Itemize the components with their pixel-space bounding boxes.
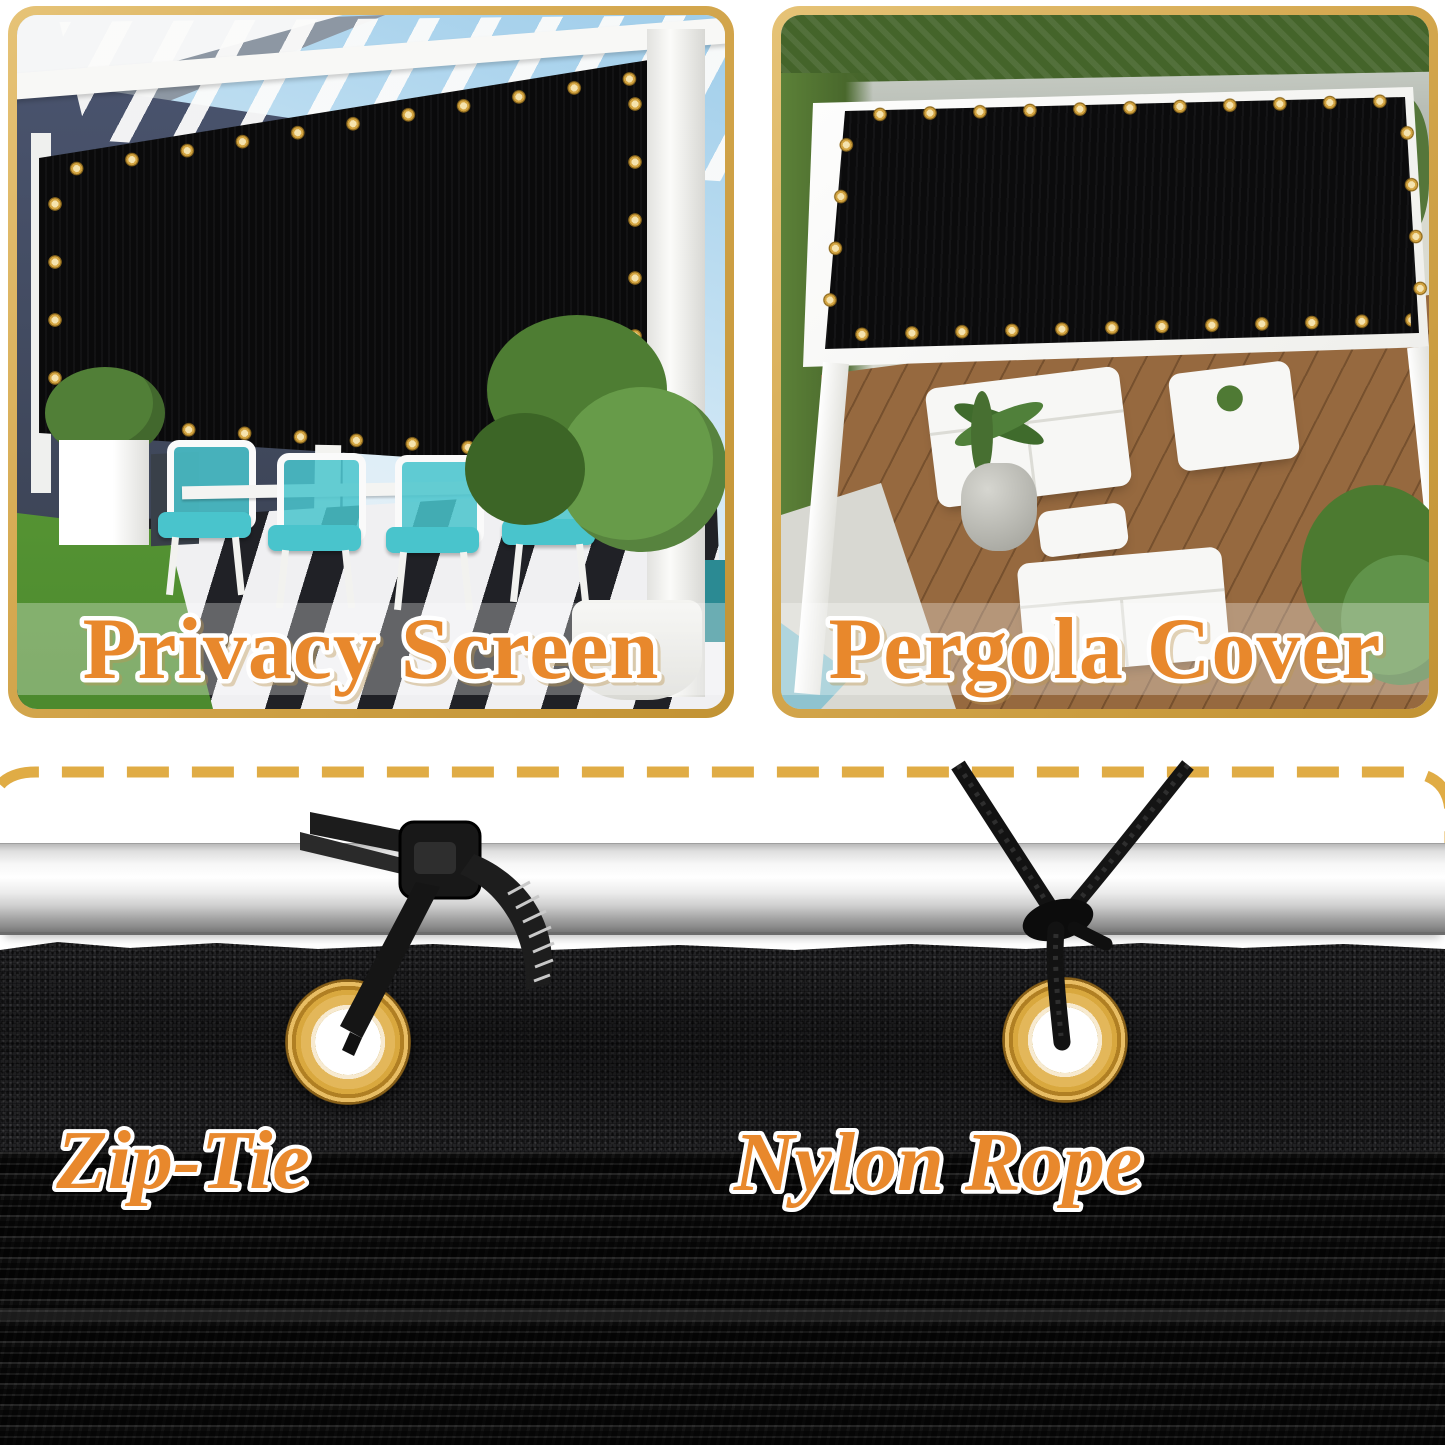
dashed-guide-line — [0, 0, 1445, 850]
rope-knot-end — [1074, 928, 1106, 944]
zip-tie-tail — [460, 854, 552, 990]
zip-tie-caption: Zip-Tie — [15, 1098, 375, 1218]
zip-tie-head-slot — [414, 842, 456, 874]
zip-tie-strap-to-grommet — [340, 882, 440, 1038]
nylon-rope — [890, 752, 1250, 1092]
zip-tie-label: Zip-Tie — [55, 1114, 309, 1207]
zip-tie — [250, 770, 590, 1060]
nylon-rope-label: Nylon Rope — [733, 1116, 1142, 1209]
product-feature-image: Privacy Screen — [0, 0, 1445, 1445]
nylon-rope-caption: Nylon Rope — [700, 1100, 1180, 1220]
